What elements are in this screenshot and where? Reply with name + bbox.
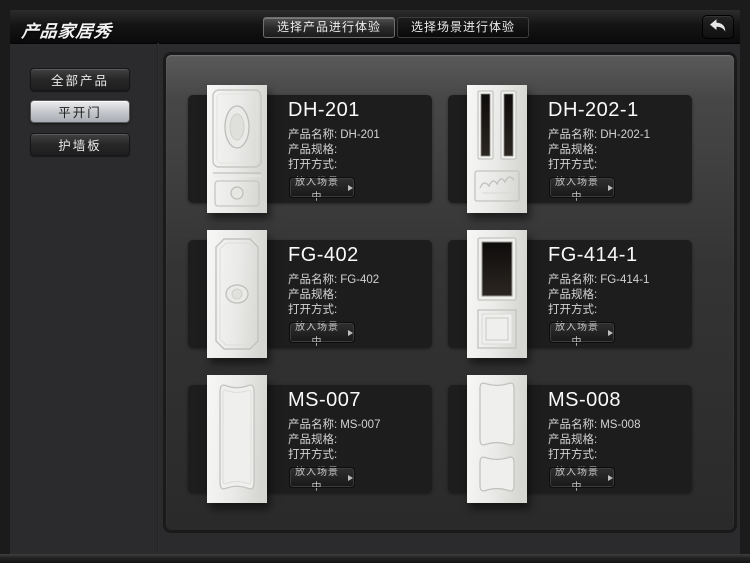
- sidebar-divider: [157, 43, 159, 554]
- product-spec-row: 产品规格:: [288, 143, 380, 158]
- product-name-value: FG-414-1: [600, 274, 649, 286]
- top-bar: 产品家居秀 选择产品进行体验 选择场景进行体验: [10, 10, 740, 44]
- product-spec-row: 产品规格:: [288, 288, 379, 303]
- play-icon: [348, 330, 353, 336]
- play-icon: [608, 475, 613, 481]
- add-to-scene-button[interactable]: 放入场景中: [550, 468, 614, 487]
- product-open-label: 打开方式:: [548, 304, 597, 316]
- product-card: FG-414-1 产品名称:FG-414-1 产品规格: 打开方式: 放入场景中: [448, 240, 692, 348]
- add-to-scene-button[interactable]: 放入场景中: [290, 468, 354, 487]
- product-title: MS-007: [288, 389, 361, 412]
- add-to-scene-label: 放入场景中: [291, 173, 343, 203]
- bottom-frame-edge: [0, 554, 750, 563]
- product-name-row: 产品名称:DH-201: [288, 128, 380, 143]
- product-name-value: MS-007: [340, 419, 380, 431]
- add-to-scene-button[interactable]: 放入场景中: [290, 178, 354, 197]
- product-spec-row: 产品规格:: [548, 288, 649, 303]
- product-title: FG-402: [288, 244, 359, 267]
- product-spec-label: 产品规格:: [548, 289, 597, 301]
- product-grid-panel: DH-201 产品名称:DH-201 产品规格: 打开方式: 放入场景中: [163, 52, 737, 533]
- play-icon: [608, 185, 613, 191]
- product-card: MS-008 产品名称:MS-008 产品规格: 打开方式: 放入场景中: [448, 385, 692, 493]
- product-open-row: 打开方式:: [288, 448, 380, 463]
- product-open-row: 打开方式:: [548, 448, 640, 463]
- product-title: FG-414-1: [548, 244, 638, 267]
- product-name-label: 产品名称:: [548, 274, 597, 286]
- product-name-label: 产品名称:: [548, 419, 597, 431]
- product-name-label: 产品名称:: [288, 129, 337, 141]
- product-name-label: 产品名称:: [548, 129, 597, 141]
- door-image: [467, 230, 527, 358]
- product-name-row: 产品名称:FG-402: [288, 273, 379, 288]
- play-icon: [348, 475, 353, 481]
- product-spec-label: 产品规格:: [288, 434, 337, 446]
- product-open-label: 打开方式:: [288, 304, 337, 316]
- add-to-scene-button[interactable]: 放入场景中: [290, 323, 354, 342]
- app-logo: 产品家居秀: [21, 17, 114, 42]
- mode-tabs: 选择产品进行体验 选择场景进行体验: [263, 17, 529, 38]
- door-image: [467, 85, 527, 213]
- product-spec-label: 产品规格:: [548, 434, 597, 446]
- product-open-row: 打开方式:: [288, 303, 379, 318]
- product-spec-label: 产品规格:: [288, 144, 337, 156]
- product-card: MS-007 产品名称:MS-007 产品规格: 打开方式: 放入场景中: [188, 385, 432, 493]
- app-window: 产品家居秀 选择产品进行体验 选择场景进行体验 全部产品 平开门 护墙板: [10, 10, 740, 554]
- sidebar-item-swing-door[interactable]: 平开门: [30, 100, 130, 123]
- add-to-scene-label: 放入场景中: [291, 318, 343, 348]
- sidebar-item-wall-panel[interactable]: 护墙板: [30, 133, 130, 156]
- product-open-row: 打开方式:: [288, 158, 380, 173]
- product-name-row: 产品名称:FG-414-1: [548, 273, 649, 288]
- product-name-value: FG-402: [340, 274, 379, 286]
- add-to-scene-button[interactable]: 放入场景中: [550, 323, 614, 342]
- sidebar-item-label: 护墙板: [58, 135, 102, 154]
- product-name-value: DH-202-1: [600, 129, 650, 141]
- play-icon: [348, 185, 353, 191]
- product-name-label: 产品名称:: [288, 419, 337, 431]
- back-arrow-icon: [709, 18, 727, 36]
- tab-select-product[interactable]: 选择产品进行体验: [263, 17, 395, 38]
- product-card: DH-201 产品名称:DH-201 产品规格: 打开方式: 放入场景中: [188, 95, 432, 203]
- tab-select-scene[interactable]: 选择场景进行体验: [397, 17, 529, 38]
- sidebar-item-label: 平开门: [58, 102, 102, 121]
- product-spec-row: 产品规格:: [548, 143, 650, 158]
- product-name-label: 产品名称:: [288, 274, 337, 286]
- add-to-scene-label: 放入场景中: [551, 318, 603, 348]
- product-title: MS-008: [548, 389, 621, 412]
- product-card: DH-202-1 产品名称:DH-202-1 产品规格: 打开方式: 放入场景中: [448, 95, 692, 203]
- back-button[interactable]: [702, 15, 734, 39]
- add-to-scene-button[interactable]: 放入场景中: [550, 178, 614, 197]
- product-name-row: 产品名称:DH-202-1: [548, 128, 650, 143]
- product-open-row: 打开方式:: [548, 303, 649, 318]
- product-name-row: 产品名称:MS-008: [548, 418, 640, 433]
- add-to-scene-label: 放入场景中: [551, 463, 603, 493]
- product-name-value: DH-201: [340, 129, 380, 141]
- product-spec-row: 产品规格:: [288, 433, 380, 448]
- product-open-row: 打开方式:: [548, 158, 650, 173]
- product-open-label: 打开方式:: [548, 159, 597, 171]
- product-open-label: 打开方式:: [548, 449, 597, 461]
- product-card: FG-402 产品名称:FG-402 产品规格: 打开方式: 放入场景中: [188, 240, 432, 348]
- product-title: DH-202-1: [548, 99, 639, 122]
- sidebar-item-label: 全部产品: [51, 70, 109, 89]
- product-spec-row: 产品规格:: [548, 433, 640, 448]
- door-image: [207, 230, 267, 358]
- sidebar-item-all-products[interactable]: 全部产品: [30, 68, 130, 91]
- product-title: DH-201: [288, 99, 360, 122]
- door-image: [207, 375, 267, 503]
- play-icon: [608, 330, 613, 336]
- product-open-label: 打开方式:: [288, 449, 337, 461]
- door-image: [207, 85, 267, 213]
- door-image: [467, 375, 527, 503]
- product-open-label: 打开方式:: [288, 159, 337, 171]
- add-to-scene-label: 放入场景中: [291, 463, 343, 493]
- add-to-scene-label: 放入场景中: [551, 173, 603, 203]
- product-spec-label: 产品规格:: [548, 144, 597, 156]
- product-spec-label: 产品规格:: [288, 289, 337, 301]
- product-name-value: MS-008: [600, 419, 640, 431]
- product-name-row: 产品名称:MS-007: [288, 418, 380, 433]
